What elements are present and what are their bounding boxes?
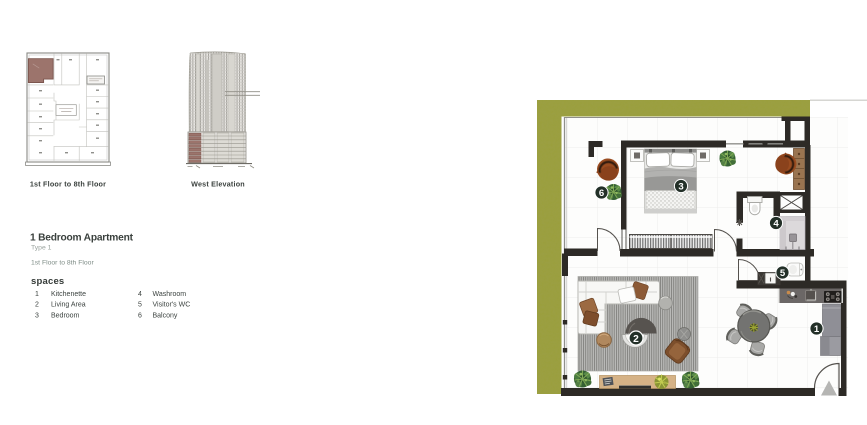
svg-text:4: 4 [773, 219, 779, 230]
svg-text:6: 6 [599, 188, 604, 199]
svg-text:Visitor's WC: Visitor's WC [153, 302, 191, 309]
svg-text:1: 1 [814, 324, 820, 335]
svg-text:spaces: spaces [31, 276, 64, 287]
svg-text:Living Area: Living Area [51, 302, 86, 309]
svg-text:1: 1 [35, 291, 39, 298]
svg-text:3: 3 [35, 312, 39, 319]
svg-text:West Elevation: West Elevation [191, 180, 245, 189]
svg-text:Type 1: Type 1 [31, 245, 52, 252]
svg-text:1 Bedroom Apartment: 1 Bedroom Apartment [30, 233, 134, 244]
svg-text:3: 3 [678, 182, 683, 193]
svg-text:Balcony: Balcony [153, 312, 178, 319]
svg-text:1st Floor to 8th Floor: 1st Floor to 8th Floor [30, 180, 106, 189]
svg-text:5: 5 [138, 302, 142, 309]
svg-text:Washroom: Washroom [153, 291, 187, 298]
svg-text:2: 2 [633, 334, 639, 345]
svg-text:Bedroom: Bedroom [51, 312, 80, 319]
svg-text:6: 6 [138, 312, 142, 319]
svg-text:4: 4 [138, 291, 142, 298]
svg-text:Kitchenette: Kitchenette [51, 291, 86, 298]
svg-text:1st Floor to 8th Floor: 1st Floor to 8th Floor [31, 260, 94, 267]
svg-text:5: 5 [780, 268, 786, 279]
svg-text:2: 2 [35, 302, 39, 309]
